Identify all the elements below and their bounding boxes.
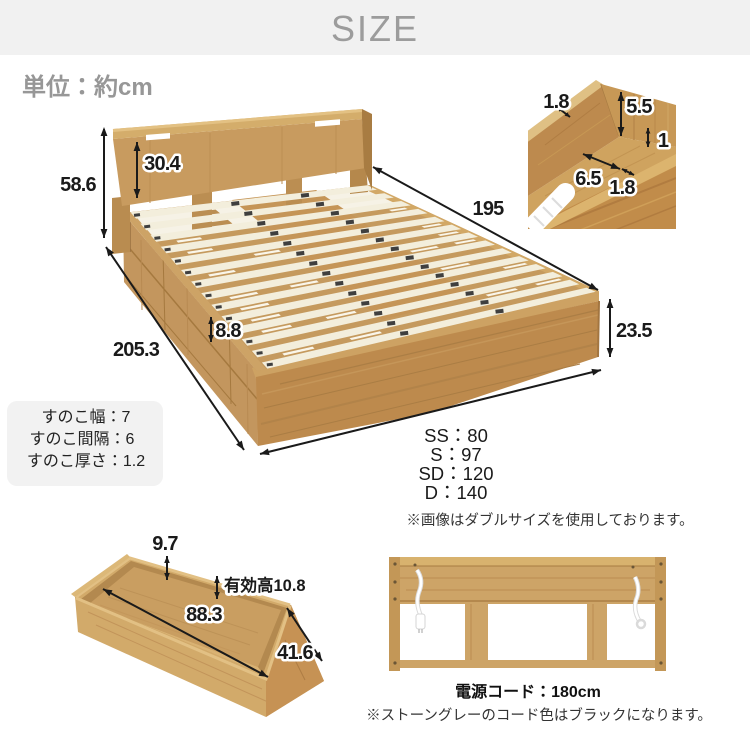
svg-text:41.6: 41.6 xyxy=(277,642,313,664)
svg-text:8.8: 8.8 xyxy=(215,320,241,342)
svg-text:SD：120: SD：120 xyxy=(418,463,493,484)
svg-text:58.6: 58.6 xyxy=(60,174,96,196)
svg-text:88.3: 88.3 xyxy=(186,604,222,626)
svg-text:1.8: 1.8 xyxy=(609,177,635,199)
svg-text:S：97: S：97 xyxy=(430,444,481,465)
svg-text:9.7: 9.7 xyxy=(152,533,178,555)
svg-text:30.4: 30.4 xyxy=(144,153,181,175)
svg-text:1.8: 1.8 xyxy=(543,91,569,113)
svg-text:6.5: 6.5 xyxy=(575,168,601,190)
svg-text:すのこ間隔：6: すのこ間隔：6 xyxy=(30,430,135,448)
svg-text:23.5: 23.5 xyxy=(616,320,652,342)
svg-text:※画像はダブルサイズを使用しております。: ※画像はダブルサイズを使用しております。 xyxy=(406,511,693,529)
svg-text:D：140: D：140 xyxy=(425,482,488,503)
svg-text:205.3: 205.3 xyxy=(113,339,160,361)
svg-text:SIZE: SIZE xyxy=(331,8,419,49)
svg-text:単位：約cm: 単位：約cm xyxy=(22,73,153,101)
svg-text:すのこ厚さ：1.2: すのこ厚さ：1.2 xyxy=(27,452,145,470)
svg-text:有効高10.8: 有効高10.8 xyxy=(224,575,306,595)
svg-text:195: 195 xyxy=(473,198,505,220)
svg-text:5.5: 5.5 xyxy=(626,96,652,118)
svg-text:すのこ幅：7: すのこ幅：7 xyxy=(42,408,131,426)
svg-text:1: 1 xyxy=(658,130,669,152)
svg-text:電源コード：180cm: 電源コード：180cm xyxy=(455,682,601,701)
svg-text:※ストーングレーのコード色はブラックになります。: ※ストーングレーのコード色はブラックになります。 xyxy=(366,706,712,724)
svg-text:SS：80: SS：80 xyxy=(424,425,488,446)
